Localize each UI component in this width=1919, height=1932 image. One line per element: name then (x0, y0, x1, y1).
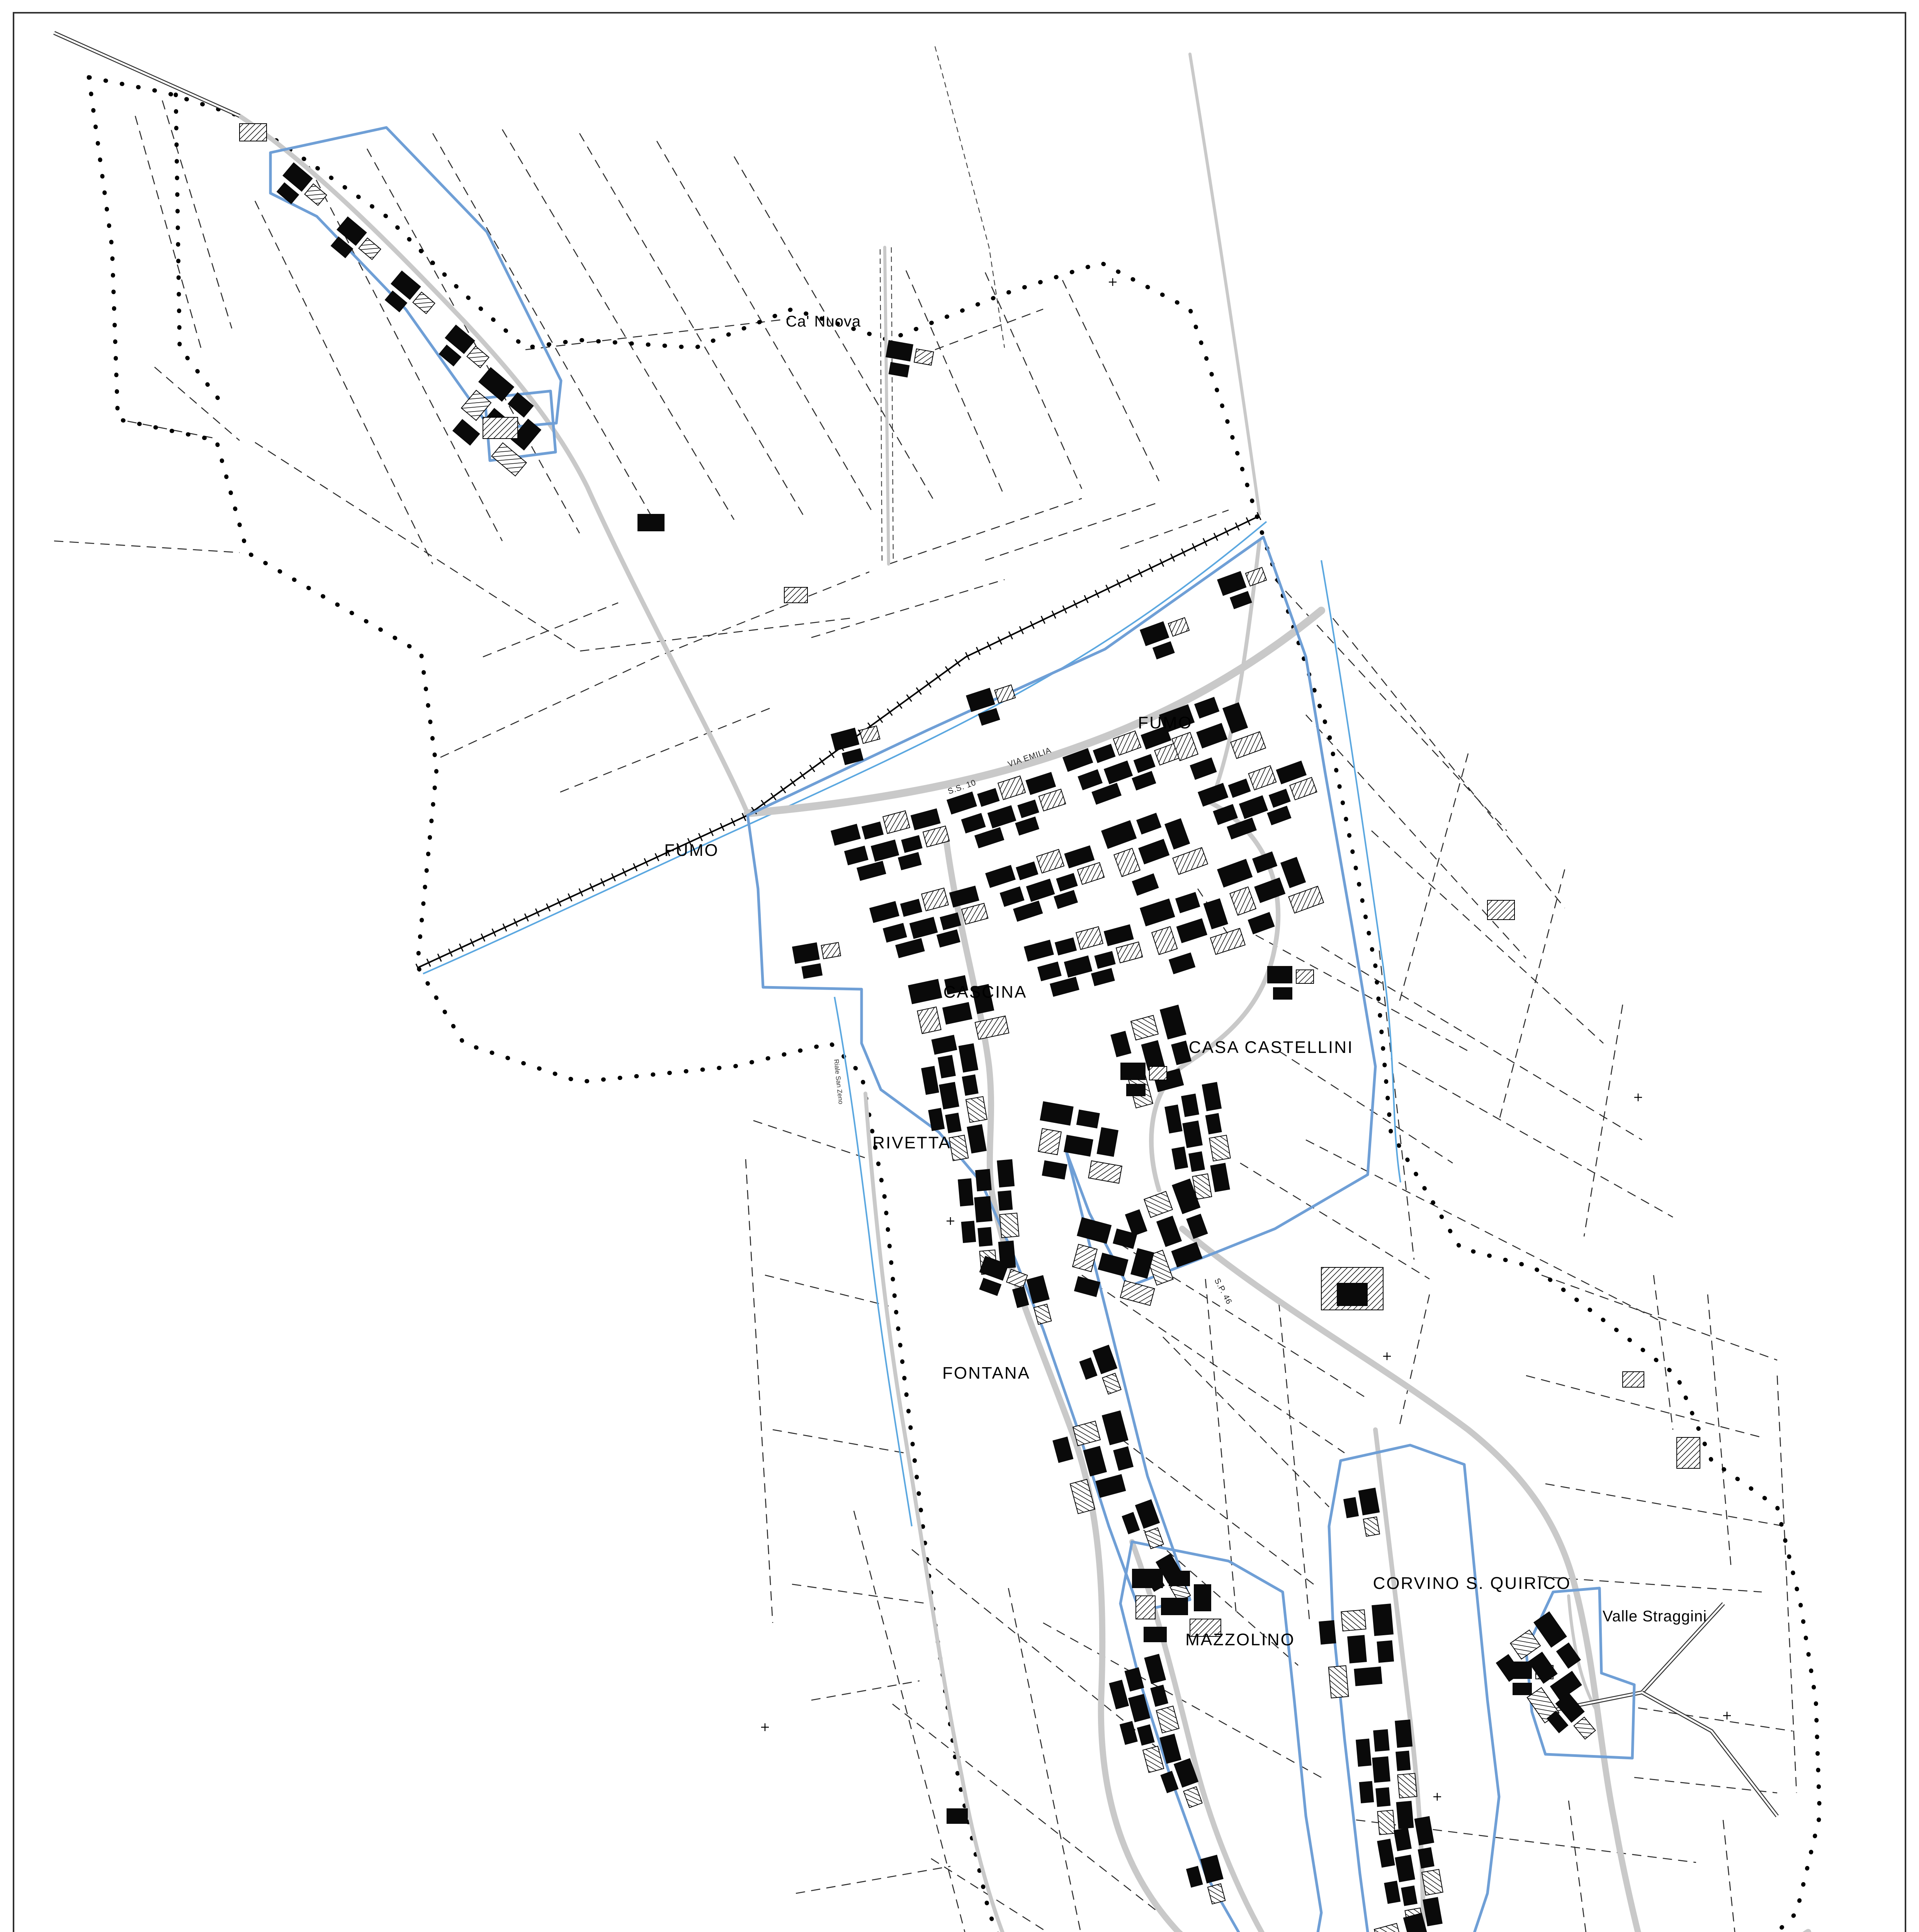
label-casa-castellini: CASA CASTELLINI (1189, 1038, 1353, 1057)
label-fumo-west: FUMO (664, 841, 719, 860)
label-fontana: FONTANA (942, 1364, 1030, 1383)
label-sp46: S.P. 46 (1212, 1277, 1234, 1306)
map-canvas: Ca' Nuova FUMO FUMO CASA CASTELLINI CASC… (0, 0, 1919, 1932)
buildings (240, 124, 1705, 1932)
label-cascina: CASCINA (943, 983, 1027, 1002)
page-border (14, 13, 1905, 1932)
label-mazzolino: MAZZOLINO (1185, 1630, 1295, 1649)
streams (423, 522, 1401, 1526)
label-rivetta: RIVETTA (872, 1133, 951, 1152)
label-valle-straggini: Valle Straggini (1603, 1608, 1707, 1625)
label-corvino: CORVINO S. QUIRICO (1373, 1574, 1571, 1593)
label-riale-san-zeno: Riale San Zeno (833, 1059, 845, 1105)
label-ca-nuova: Ca' Nuova (786, 313, 861, 330)
label-fumo-east: FUMO (1138, 713, 1193, 732)
map-sheet: Ca' Nuova FUMO FUMO CASA CASTELLINI CASC… (0, 0, 1919, 1932)
